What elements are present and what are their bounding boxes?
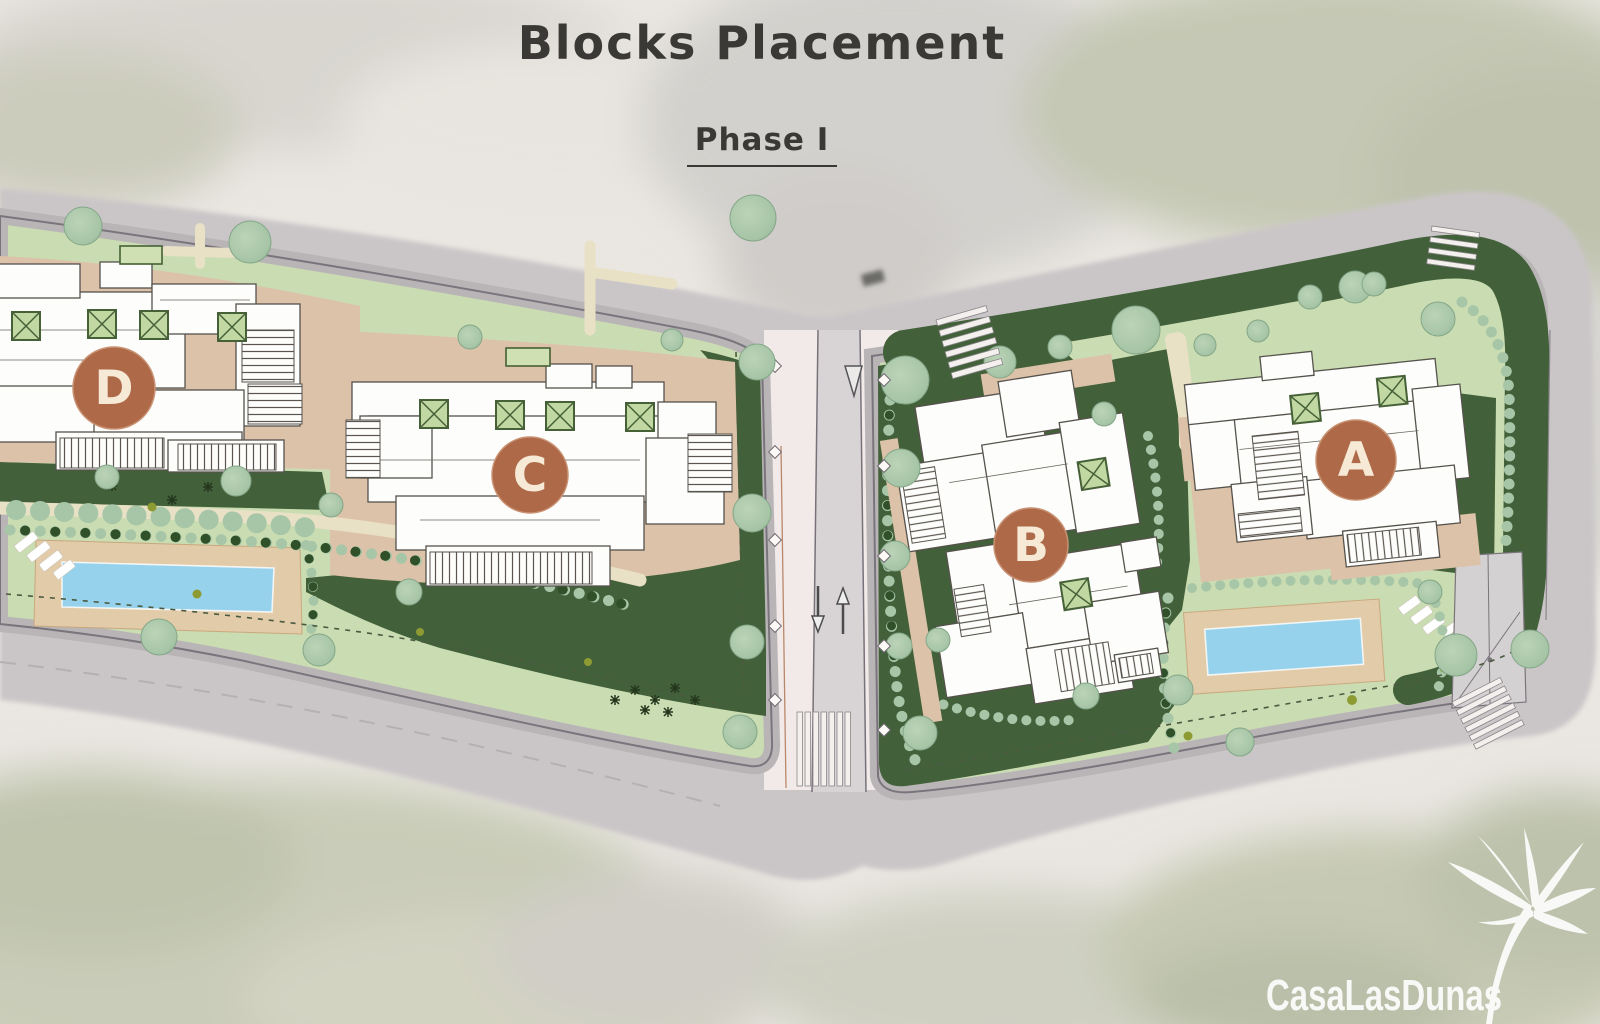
crosswalk-bottom-center	[797, 712, 851, 786]
block-label-d: D	[94, 361, 133, 416]
site-plan-page: D C B A CasaLasDunas Blocks Placement	[0, 0, 1600, 1024]
block-marker-d: D	[73, 347, 155, 429]
block-label-c: C	[513, 448, 548, 503]
page-title: Blocks Placement	[0, 16, 1524, 70]
header: Blocks Placement Phase I	[0, 16, 1524, 167]
block-marker-a: A	[1316, 420, 1396, 500]
block-marker-c: C	[492, 437, 568, 513]
block-marker-b: B	[994, 508, 1068, 582]
pool-right	[1184, 599, 1385, 694]
phase-label: Phase I	[687, 122, 838, 167]
parcel-right	[872, 248, 1549, 793]
block-label-b: B	[1013, 518, 1049, 573]
logo-text: CasaLasDunas	[1266, 971, 1502, 1020]
block-label-a: A	[1338, 433, 1375, 488]
